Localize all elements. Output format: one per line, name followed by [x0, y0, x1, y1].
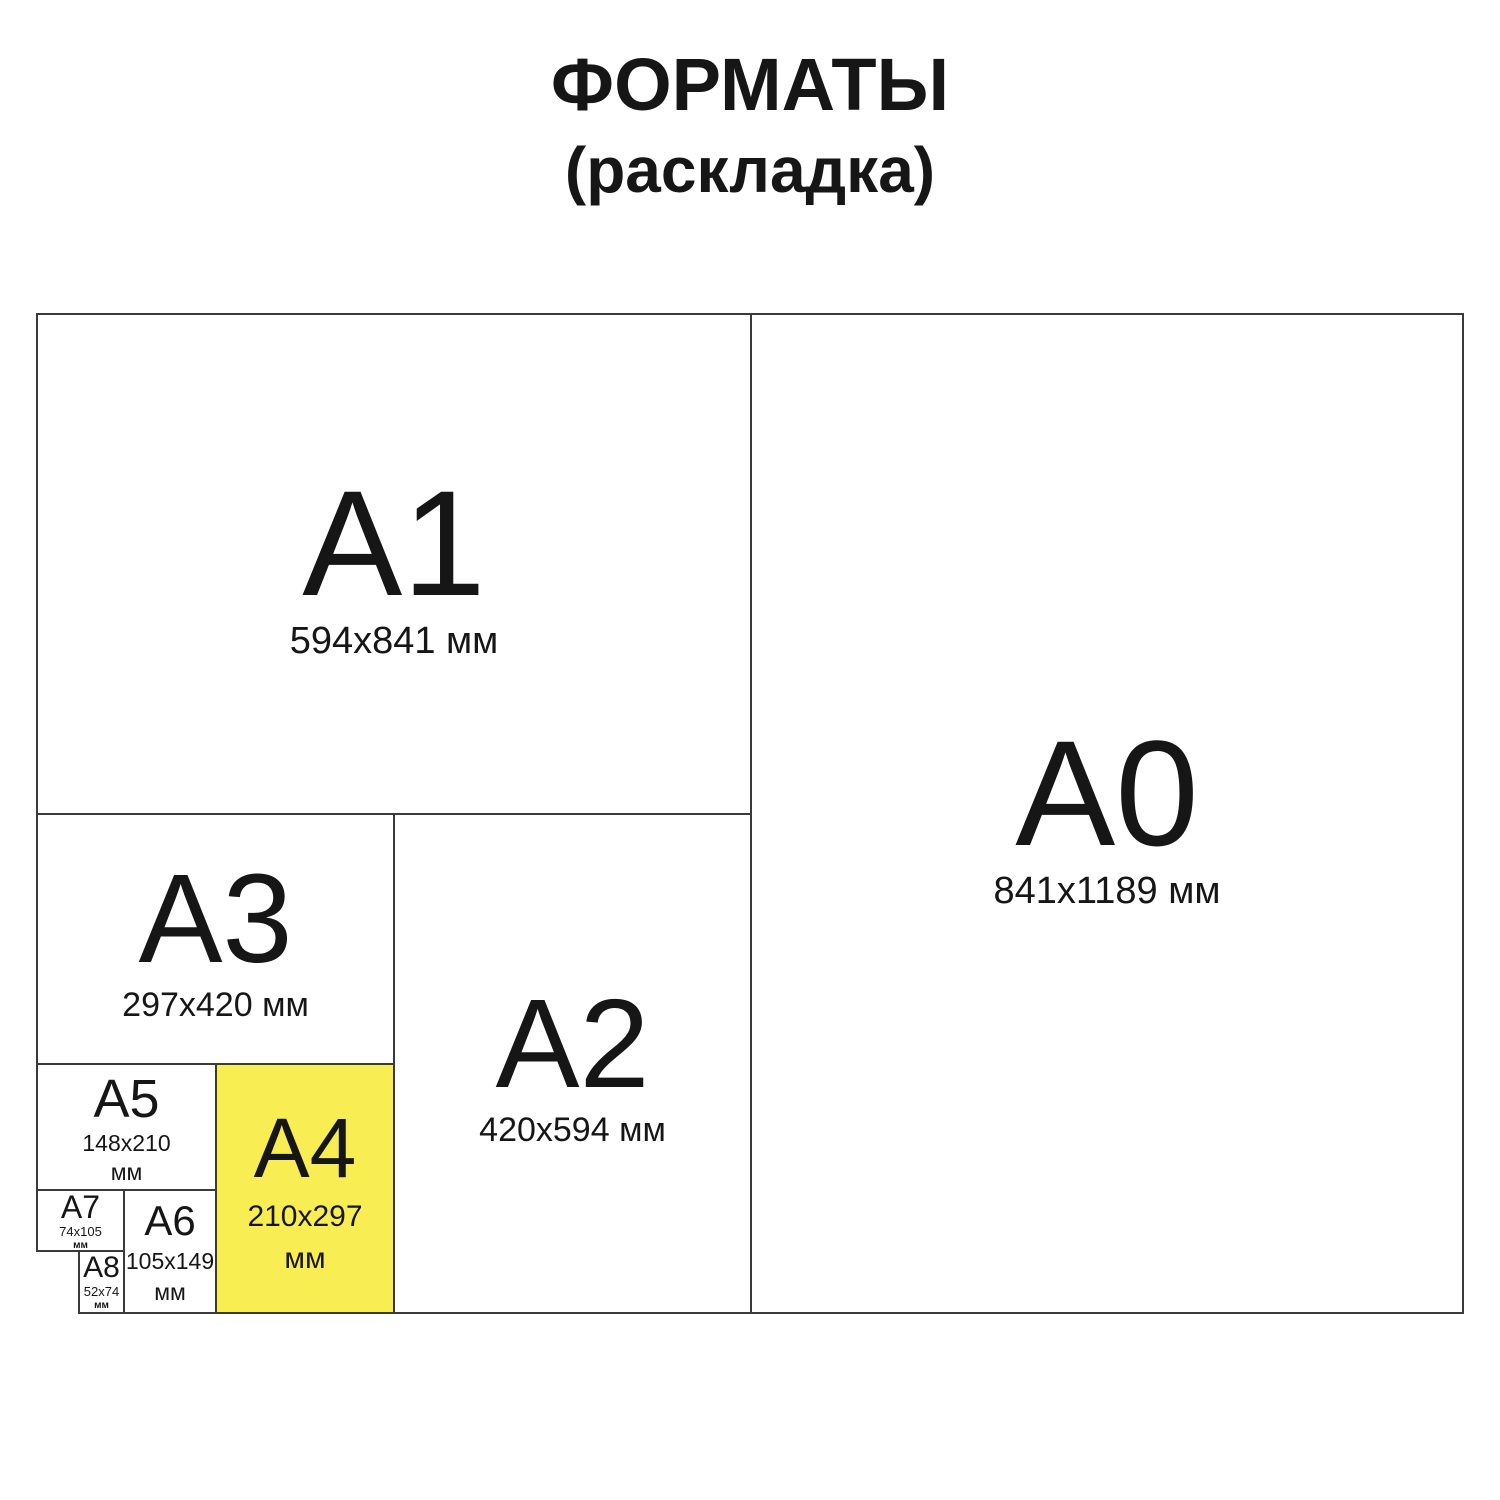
- paper-a0-dimensions: 841x1189 мм: [994, 872, 1221, 910]
- page-title: ФОРМАТЫ (раскладка): [0, 40, 1500, 210]
- paper-a8-units: мм: [94, 1301, 109, 1311]
- paper-a2-dimensions: 420x594 мм: [479, 1113, 666, 1147]
- paper-a1-label: A1: [302, 468, 485, 618]
- paper-a7: A7 74x105 мм: [36, 1189, 125, 1252]
- paper-a7-dimensions: 74x105: [59, 1225, 102, 1238]
- paper-a0-label: A0: [1015, 718, 1198, 868]
- paper-a3-dimensions: 297x420 мм: [122, 988, 309, 1022]
- paper-a4-label: A4: [254, 1104, 357, 1192]
- paper-a7-label: A7: [61, 1191, 100, 1223]
- paper-a4-dimensions: 210x297: [247, 1202, 362, 1232]
- paper-a2-label: A2: [495, 981, 649, 1107]
- paper-a1: A1 594x841 мм: [36, 313, 752, 815]
- paper-a6-dimensions: 105x149: [126, 1250, 214, 1273]
- paper-a3: A3 297x420 мм: [36, 813, 395, 1065]
- paper-a1-dimensions: 594x841 мм: [290, 622, 499, 660]
- paper-a5: A5 148x210 мм: [36, 1063, 217, 1191]
- paper-a4-highlighted: A4 210x297 мм: [215, 1063, 395, 1314]
- paper-a8: A8 52x74 мм: [78, 1250, 125, 1314]
- paper-a2: A2 420x594 мм: [393, 813, 752, 1314]
- paper-a6-units: мм: [154, 1281, 186, 1304]
- title-line2: (раскладка): [0, 130, 1500, 210]
- paper-a7-units: мм: [73, 1241, 88, 1251]
- paper-a6-label: A6: [144, 1199, 195, 1243]
- paper-a8-label: A8: [83, 1253, 120, 1283]
- paper-a8-dimensions: 52x74: [84, 1285, 119, 1298]
- paper-a5-dimensions: 148x210: [82, 1132, 170, 1155]
- paper-a0: A0 841x1189 мм: [750, 313, 1464, 1314]
- paper-a6: A6 105x149 мм: [123, 1189, 217, 1314]
- paper-a4-units: мм: [284, 1244, 325, 1274]
- title-line1: ФОРМАТЫ: [0, 40, 1500, 130]
- paper-a3-label: A3: [138, 856, 292, 982]
- paper-a5-units: мм: [111, 1161, 143, 1184]
- paper-a5-label: A5: [93, 1071, 159, 1127]
